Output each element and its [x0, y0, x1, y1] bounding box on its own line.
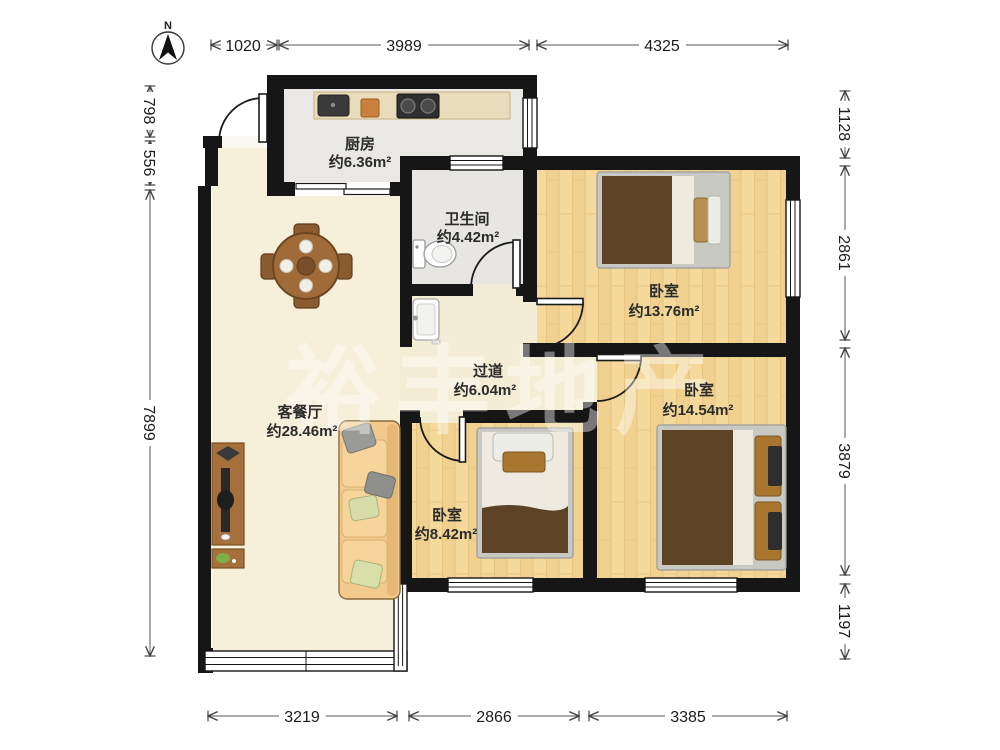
svg-text:1020: 1020 — [225, 38, 261, 55]
pillow-dark-1 — [768, 446, 782, 486]
svg-text:约4.42m²: 约4.42m² — [437, 228, 500, 246]
pillow-white — [708, 196, 721, 244]
bottom-wall-b — [533, 578, 645, 592]
svg-text:556: 556 — [140, 150, 157, 177]
cutting-board — [361, 99, 379, 117]
svg-text:卧室: 卧室 — [684, 381, 714, 399]
bedroom-top-door-leaf — [537, 299, 583, 305]
bathroom-top-window — [450, 156, 503, 170]
dim-top-1: 1020 — [211, 36, 277, 55]
svg-text:卧室: 卧室 — [649, 282, 679, 300]
living-hall-divider — [400, 156, 412, 347]
plant — [216, 553, 230, 563]
bedroom-top-right-window — [786, 200, 800, 297]
pillow-tan — [694, 198, 708, 242]
svg-text:2861: 2861 — [835, 235, 852, 271]
kitchen-top-wall — [267, 75, 537, 89]
bathroom-bedroom-wall — [523, 156, 537, 302]
entrance-door-arc — [219, 98, 263, 142]
svg-text:约6.04m²: 约6.04m² — [454, 381, 517, 399]
bed-bedroom-top — [597, 172, 730, 268]
tv-cabinet — [212, 443, 244, 568]
bathroom-bottom-wall-l — [400, 284, 473, 296]
right-outer-wall-a — [786, 156, 800, 200]
north-top-wall-r — [503, 156, 800, 170]
dim-top-3: 4325 — [537, 36, 788, 55]
dim-left-1: 798 — [140, 86, 159, 137]
right-outer-wall-b — [786, 297, 800, 592]
svg-text:3385: 3385 — [670, 709, 706, 726]
svg-text:1128: 1128 — [835, 107, 852, 142]
compass-north-label: N — [164, 20, 172, 32]
left-wall-upper — [205, 136, 218, 186]
kitchen-right-window — [523, 98, 537, 148]
svg-text:过道: 过道 — [473, 362, 503, 380]
bed-bedroom-bottom — [477, 428, 573, 558]
svg-text:798: 798 — [140, 98, 157, 125]
sofa — [339, 421, 400, 599]
floor-plan-page: 裕丰地产 厨房 约6.36m² 卫生间 约4.42m² 卧室 约13.76m² … — [0, 0, 1000, 750]
svg-text:3879: 3879 — [835, 443, 852, 479]
kitchen-left-wall — [267, 75, 284, 196]
svg-text:约14.54m²: 约14.54m² — [663, 401, 734, 419]
svg-text:2866: 2866 — [476, 709, 512, 726]
north-compass-icon: N — [152, 20, 184, 64]
bed-bedroom-right — [657, 425, 786, 570]
bottom-wall-c — [737, 578, 800, 592]
dim-right-4: 1197 — [835, 584, 854, 659]
svg-text:4325: 4325 — [644, 38, 680, 55]
svg-text:约6.36m²: 约6.36m² — [329, 153, 392, 171]
svg-text:3989: 3989 — [386, 38, 422, 55]
kitchen-right-wall-a — [523, 75, 537, 98]
entrance-door-leaf — [259, 94, 267, 142]
dim-bottom-1: 3219 — [208, 707, 397, 726]
kitchen-bottom-wall-l — [267, 182, 295, 196]
dim-right-1: 1128 — [835, 91, 854, 158]
svg-text:客餐厅: 客餐厅 — [276, 403, 322, 421]
dim-bottom-3: 3385 — [589, 707, 787, 726]
svg-text:3219: 3219 — [284, 709, 320, 726]
dim-right-2: 2861 — [835, 166, 854, 340]
svg-text:约13.76m²: 约13.76m² — [629, 302, 700, 320]
sofa-pillow-green-1 — [348, 495, 379, 522]
bedroom-right-window — [645, 578, 737, 592]
kitchen-counter — [314, 92, 510, 119]
kitchen-sliding-door — [295, 182, 390, 196]
svg-text:厨房: 厨房 — [345, 135, 375, 153]
pillow-dark-2 — [768, 512, 782, 550]
svg-text:约8.42m²: 约8.42m² — [415, 525, 478, 543]
entrance-door — [219, 94, 267, 142]
svg-text:卧室: 卧室 — [432, 506, 462, 524]
dim-left-2: 556 — [140, 141, 159, 185]
svg-text:约28.46m²: 约28.46m² — [267, 422, 338, 440]
svg-text:1197: 1197 — [835, 604, 852, 639]
dim-top-2: 3989 — [279, 36, 529, 55]
svg-text:7899: 7899 — [140, 405, 157, 441]
dim-left-3: 7899 — [140, 190, 159, 656]
dim-bottom-2: 2866 — [409, 707, 579, 726]
dim-right-3: 3879 — [835, 348, 854, 575]
svg-text:卫生间: 卫生间 — [444, 210, 489, 228]
bedroom-bottom-window — [448, 578, 533, 592]
pillow-brown-b — [503, 452, 545, 472]
floor-plan-svg: 裕丰地产 厨房 约6.36m² 卫生间 约4.42m² 卧室 约13.76m² … — [0, 0, 1000, 750]
bathroom-door-leaf — [513, 240, 520, 288]
left-wall-lower — [198, 186, 211, 660]
washbasin-icon — [413, 299, 440, 344]
